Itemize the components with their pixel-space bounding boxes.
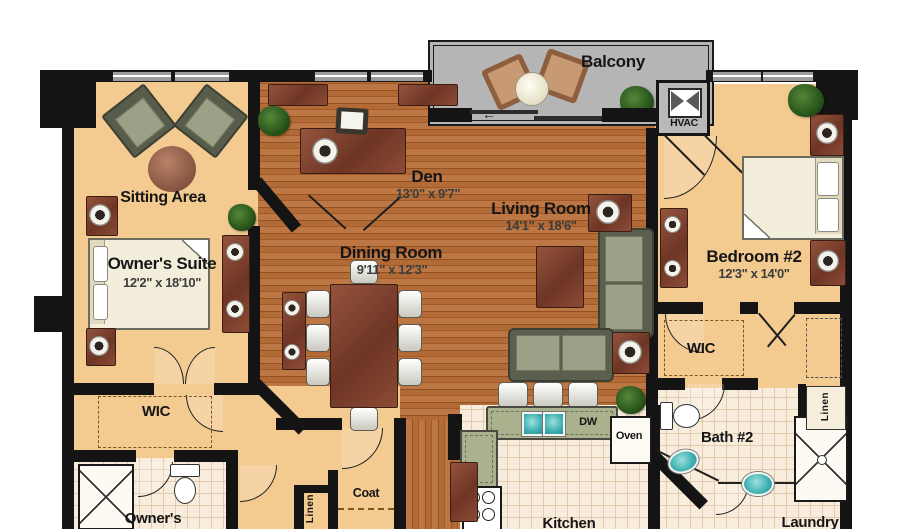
kitchen-sink-basin-2 [543,412,565,436]
wall-bed2-wic-b [740,302,758,314]
bath2-toilet-tank [660,402,673,430]
plant-bedroom2 [788,84,824,117]
wic-left-label: WIC [142,403,170,420]
bedroom2-label: Bedroom #2 [706,247,801,267]
oven-label: Oven [616,430,642,442]
owners-suite-dims: 12'2" x 18'10" [123,275,201,290]
kitchen-label: Kitchen [543,515,596,529]
hall-console [450,462,478,522]
bed2-fold [744,214,770,238]
wall-bed2-wic-a [655,302,703,314]
dining-room-label: Dining Room [340,243,442,263]
living-lamp-bottom [618,340,642,364]
closet-right-rod [806,318,842,378]
owners-bath-toilet-bowl [174,477,196,504]
den-credenza-1 [268,84,328,106]
den-dims: 13'0" x 9'7" [396,186,460,201]
dining-sideboard-lamp-2 [284,344,300,360]
balcony-slider-panel-2 [534,116,602,120]
den-label: Den [411,167,442,187]
dishwasher-label: DW [579,416,597,428]
den-chair [312,138,338,164]
owners-suite-label: Owner's Suite [108,254,217,274]
wall-suite-wic-a [62,383,154,395]
dining-sideboard-lamp-1 [284,300,300,316]
wall-sitting-den [248,78,260,190]
dining-chair-bottom [350,407,378,431]
kitchen-sink-basin-1 [522,412,544,436]
floor-plan: Balcony ← HVAC [0,0,900,529]
wall-wic2-bath-a [655,378,685,390]
dining-chair-r3 [398,358,422,386]
owners-bath-label: Owner's [125,510,182,527]
dining-chair-l1 [306,290,330,318]
dining-chair-l2 [306,324,330,352]
window-den-2 [370,71,424,82]
bed-owners-pillow-1 [93,246,108,282]
wall-bath1-hall [226,450,238,529]
linen-bath-label: Linen [820,392,831,421]
laundry-label: Laundry [781,514,838,529]
hvac-triangle-left [671,91,684,111]
window-den-1 [314,71,368,82]
slider-direction-arrow-icon: ← [482,106,496,122]
bath2-label: Bath #2 [701,429,753,446]
plant-den-left [258,106,290,136]
balcony-slider-panel-1 [470,110,538,114]
bed2-lamp-2 [817,250,839,272]
plant-living [616,386,646,414]
sitting-ottoman [148,146,196,192]
bar-stool-1 [498,382,528,408]
linen-hall-label: Linen [305,494,316,523]
window-sitting-1 [112,71,172,82]
window-bedroom2-1 [712,71,762,82]
bed2-dresser-lamp-2 [664,260,681,277]
hvac-label: HVAC [670,117,698,129]
bed-bedroom2 [742,156,844,240]
wall-left-bump [34,296,62,332]
suite-dresser-lamp-1 [226,243,244,261]
wall-bed2-wic-c [794,302,840,314]
bed2-dresser-lamp-1 [664,216,681,233]
bed2-pillow-2 [817,198,839,232]
bed2-pillow-1 [817,162,839,196]
window-sitting-2 [174,71,230,82]
coat-rod [338,508,394,510]
coffee-table [536,246,584,308]
bedroom2-dims: 12'3" x 14'0" [718,266,789,281]
dining-chair-r1 [398,290,422,318]
bed-owners-pillow-2 [93,284,108,320]
dining-room-dims: 9'11" x 12'3" [357,262,427,277]
bar-stool-3 [568,382,598,408]
wall-wic-bath-a [62,450,136,462]
balcony-table [515,72,549,106]
hvac-triangle-right [686,91,699,111]
living-room-dims: 14'1" x 18'6" [505,218,576,233]
den-credenza-2 [398,84,458,106]
wall-coat-left [328,470,338,529]
owners-bath-toilet-tank [170,464,200,477]
suite-dresser-lamp-2 [226,300,244,318]
sitting-area-label: Sitting Area [120,189,206,207]
dining-chair-l3 [306,358,330,386]
wall-balcony-a [428,108,472,122]
bath2-toilet-bowl [673,404,700,428]
wall-balcony-b [602,108,660,122]
balcony-label: Balcony [581,52,645,72]
dining-table [330,284,398,408]
suite-side-lamp [89,336,109,356]
den-monitor [335,107,368,135]
bed2-lamp-1 [816,122,838,144]
living-lamp-top [596,200,620,224]
sofa-bottom [508,328,614,382]
wic-right-label: WIC [687,340,715,357]
coat-label: Coat [353,486,380,500]
sitting-lamp [89,204,111,226]
dining-chair-r2 [398,324,422,352]
sofa-right [598,228,654,338]
hvac-unit-icon [668,88,702,118]
bath2-sink-2 [742,472,774,496]
living-room-label: Living Room [491,199,591,219]
wall-wic2-bath-b [722,378,758,390]
window-bedroom2-2 [762,71,814,82]
bar-stool-2 [533,382,563,408]
wall-hall-north [276,418,342,430]
plant-sitting [228,204,256,231]
wall-coat-right [394,418,406,529]
